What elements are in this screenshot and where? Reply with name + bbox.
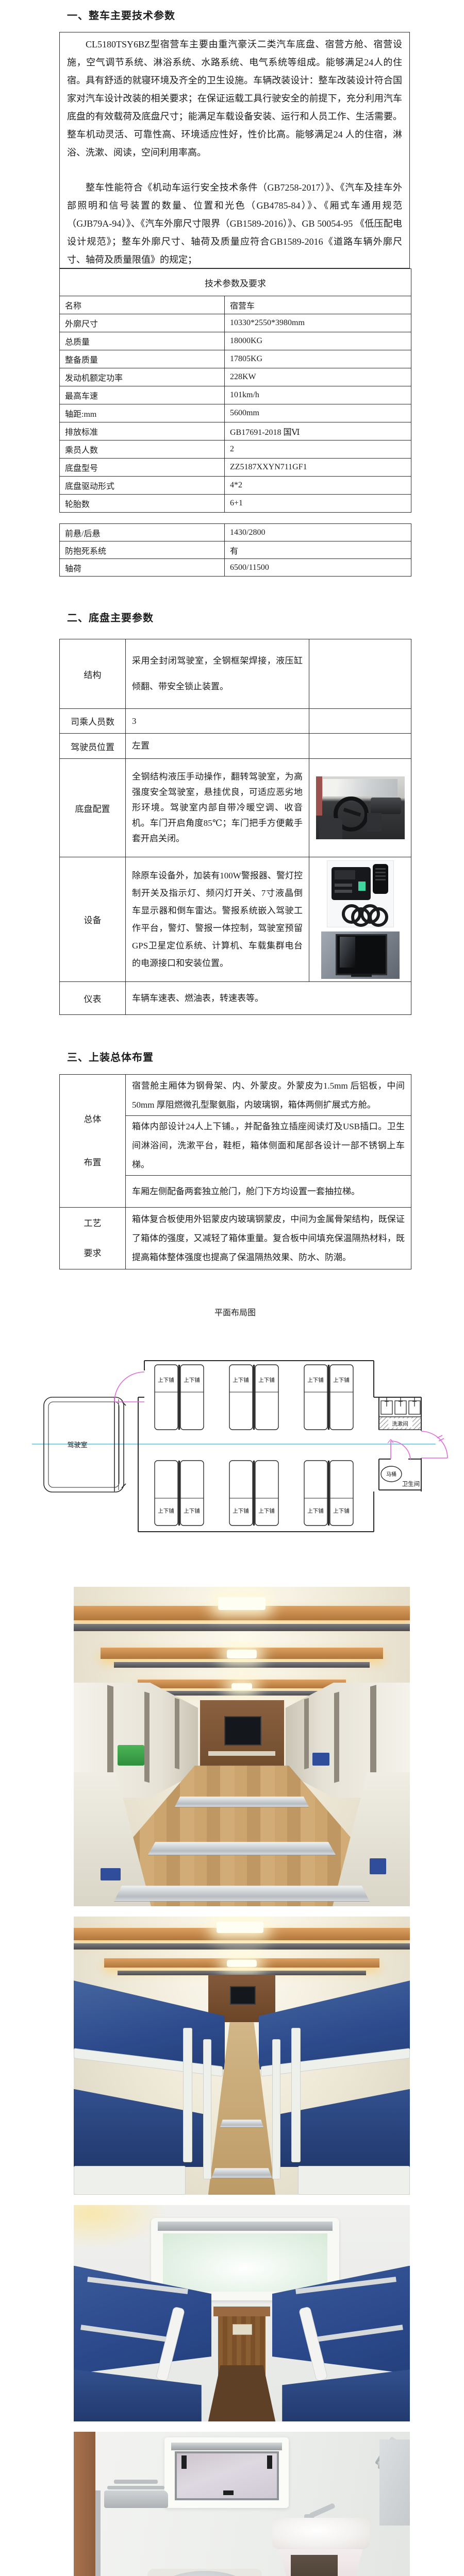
label-line: 要求 [65,1243,120,1264]
bunk-corridor-blue-mattress-photo [74,1917,410,2195]
row-label: 设备 [60,857,126,982]
bunk-gap [144,1691,150,1783]
white-bed-post [203,2039,211,2179]
row-text: 宿营舱主厢体为钢骨架、内、外蒙皮。外蒙皮为1.5mm 后铝板，中间50mm 厚阻… [126,1075,411,1116]
ceiling-light [227,1650,257,1658]
bunk-gap [334,1691,339,1783]
section1-title: 一、整车主要技术参数 [67,7,175,22]
window-top-rail [171,2443,282,2450]
table-row: 轴距:mm5600mm [60,404,411,422]
row-label: 轮胎数 [60,495,225,513]
row-text: 车辆车速表、燃油表，转速表等。 [126,982,411,1015]
wood-door-frame [74,2432,95,2576]
ceiling-rail [74,1624,410,1631]
rear-window-bunks-photo [74,2205,410,2421]
power-outlet-panel [233,2324,253,2335]
lower-bench-right [282,2369,410,2421]
cab-interior-photo [316,776,405,839]
row-value: 5600mm [225,404,411,422]
table-row: 结构 采用全封闭驾驶室，全钢框架焊接，液压缸倾翻、带安全锁止装置。 [60,639,411,709]
lower-frame-left [74,2166,186,2195]
row-label: 结构 [60,639,126,709]
table-row: 发动机额定功率228KW [60,368,411,386]
row-value: 17805KG [225,350,411,368]
window-latch [223,2490,234,2495]
equipment-image-cell [309,857,411,982]
bunk-label: 上下铺 [307,1507,324,1514]
control-display [335,870,355,879]
row-label: 防抱死系统 [60,541,225,559]
row-label: 乘员人数 [60,440,225,459]
empty-cell [309,734,411,759]
table-row: 总体 布置 宿营舱主厢体为钢骨架、内、外蒙皮。外蒙皮为1.5mm 后铝板，中间5… [60,1075,411,1116]
white-bed-post [272,2039,280,2179]
floorplan-title: 平面布局图 [59,1306,411,1318]
empty-cell [309,639,411,709]
table-row: 总质量18000KG [60,332,411,350]
row-value: 宿营车 [225,296,411,314]
windshield [323,779,397,796]
bunk-beds-bottom-row [155,1461,353,1526]
table-row: 防抱死系统有 [60,541,411,559]
intro-text-box: CL5180TSY6BZ型宿营车主要由重汽豪沃二类汽车底盘、宿营方舱、宿营设施，… [59,32,410,268]
row-label: 底盘型号 [60,459,225,477]
row-label: 底盘驱动形式 [60,477,225,495]
green-indicator [358,882,366,891]
bunk-label: 上下铺 [158,1507,174,1514]
bunk-label: 上下铺 [307,1377,324,1383]
table-row: 设备 除原车设备外，加装有100W警报器、警灯控制开关及指示灯、频闪灯开关、7寸… [60,857,411,982]
table-row: 最高车速101km/h [60,386,411,404]
row-value: 有 [225,541,411,559]
tv-screen [230,1986,256,2005]
row-value: 228KW [225,368,411,386]
bunk-gap [304,1698,309,1770]
row-value: 18000KG [225,332,411,350]
white-bed-post [291,2028,301,2162]
table-row: 工艺 要求 箱体复合板使用外铝蒙皮内玻璃钢蒙皮，中间为金属骨架结构，既保证了箱体… [60,1208,411,1269]
window-hinge [267,2455,272,2469]
row-value: 2 [225,440,411,459]
screen-reflection [340,937,355,968]
row-value: GB17691-2018 国Ⅵ [225,422,411,440]
coiled-cable [369,907,388,927]
table1-title: 技术参数及要求 [60,269,411,296]
dashboard [371,798,401,814]
row-value: 101km/h [225,386,411,404]
ceiling-light [217,1922,263,1934]
empty-cell [309,709,411,734]
row-value: 4*2 [225,477,411,495]
row-value: ZZ5187XXYN711GF1 [225,459,411,477]
ceiling-light [218,1597,265,1610]
section2-title: 二、底盘主要参数 [67,609,154,624]
row-label: 轴荷 [60,559,225,577]
bunk-corridor-white-interior-photo [74,1587,410,1906]
table-row: 名称宿营车 [60,296,411,314]
table-row: 前悬/后悬1430/2800 [60,524,411,541]
table-row: 驾驶员位置 左置 [60,734,411,759]
table-row: 排放标准GB17691-2018 国Ⅵ [60,422,411,440]
row-label: 驾驶员位置 [60,734,126,759]
blue-mat [312,1753,329,1766]
tech-parameters-table: 技术参数及要求 名称宿营车 外廓尺寸10330*2550*3980mm 总质量1… [59,268,411,513]
table-row: 司乘人员数 3 [60,709,411,734]
floor-aluminum-strip [147,1842,336,1855]
intro-paragraph-1: CL5180TSY6BZ型宿营车主要由重汽豪沃二类汽车底盘、宿营方舱、宿营设施，… [67,36,402,162]
overall-layout-label: 总体 布置 [60,1075,126,1208]
document-page: 一、整车主要技术参数 CL5180TSY6BZ型宿营车主要由重汽豪沃二类汽车底盘… [0,0,464,2576]
floor-aluminum-strip [114,1886,370,1902]
row-label: 仪表 [60,982,126,1015]
row-value: 1430/2800 [225,524,411,541]
bunk-label: 上下铺 [233,1377,249,1383]
floor-aluminum-strip [211,2168,272,2178]
chassis-image-cell [309,759,411,857]
toilet-door-arc [388,1439,410,1460]
ceiling-rail [147,1691,336,1696]
axle-parameters-table: 前悬/后悬1430/2800 防抱死系统有 轴荷6500/11500 [59,523,411,577]
row-text: 箱体内部设计24人上下铺。，并配备独立插座阅读灯及USB插口。卫生间淋浴间，洗漱… [126,1116,411,1176]
row-label: 排放标准 [60,422,225,440]
window-glass [163,2233,327,2292]
window-hinge [181,2455,187,2469]
green-storage-box [118,1745,144,1766]
table-row: 乘员人数2 [60,440,411,459]
ceiling-light [227,1960,257,1967]
intro-paragraph-2: 整车性能符合《机动车运行安全技术条件（GB7258-2017）》、《汽车及挂车外… [67,179,402,269]
bunk-label: 上下铺 [258,1377,275,1383]
row-label: 轴距:mm [60,404,225,422]
siren-control-handset-photo [327,860,394,927]
label-line: 工艺 [65,1213,120,1234]
body-layout-table: 总体 布置 宿营舱主厢体为钢骨架、内、外蒙皮。外蒙皮为1.5mm 后铝板，中间5… [59,1074,411,1269]
window-roller-bar [158,2222,333,2231]
sink-access-panel [291,2555,338,2576]
toilet-seat-label: 马桶 [386,1471,396,1478]
table-row: 仪表 车辆车速表、燃油表，转速表等。 [60,982,411,1015]
bunk-label: 上下铺 [184,1507,200,1514]
corner-shelf-rail [107,2486,164,2490]
row-text: 除原车设备外，加装有100W警报器、警灯控制开关及指示灯、频闪灯开关、7寸液晶倒… [126,857,309,982]
table-row: 整备质量17805KG [60,350,411,368]
row-value: 6500/11500 [225,559,411,577]
cab-label: 驾驶室 [67,1441,87,1449]
cabinet-top [213,2307,271,2316]
label-line: 总体 [65,1109,120,1130]
sink-cabinets [381,1397,420,1414]
row-label: 司乘人员数 [60,709,126,734]
ceiling-rail [74,1943,410,1950]
bunk-label: 上下铺 [333,1377,350,1383]
row-value: 6+1 [225,495,411,513]
row-text: 采用全封闭驾驶室，全钢框架焊接，液压缸倾翻、带安全锁止装置。 [126,639,309,709]
ceiling-light [231,1683,252,1689]
bunk-label: 上下铺 [158,1377,174,1383]
door-hinge-rail [95,2490,100,2576]
corner-shelf-rail [114,2480,158,2484]
corner-shelf [104,2490,168,2508]
washroom-label: 洗漱间 [392,1420,408,1427]
ceiling-rail [114,1662,370,1668]
table-row: 轮胎数6+1 [60,495,411,513]
lower-frame-right [298,2166,410,2195]
row-label: 外廓尺寸 [60,314,225,332]
bunk-gap [175,1698,179,1770]
toilet-room-label: 卫生间 [402,1480,420,1487]
row-label: 整备质量 [60,350,225,368]
row-label: 名称 [60,296,225,314]
cab-door-pillar [316,776,322,816]
row-text: 3 [126,709,309,734]
label-line: 布置 [65,1153,120,1173]
row-text: 车厢左侧配备两套独立舱门，舱门下方均设置一套抽拉梯。 [126,1176,411,1208]
row-text: 箱体复合板使用外铝蒙皮内玻璃钢蒙皮，中间为金属骨架结构，既保证了箱体的强度，又减… [126,1208,411,1269]
row-label: 总质量 [60,332,225,350]
bunk-beds-top-row [155,1365,353,1430]
floorplan-diagram: 驾驶室 上下铺 上下铺 [0,1340,464,1546]
table-row: 底盘配置 全钢结构液压手动操作，翻转驾驶室，为高强度安全驾驶室，悬挂优良，可适应… [60,759,411,857]
mic-grille [375,868,386,870]
control-buttons [335,884,352,887]
table-row: 底盘型号ZZ5187XXYN711GF1 [60,459,411,477]
row-label: 前悬/后悬 [60,524,225,541]
corner-sink-basin [272,2518,370,2549]
blue-strap [370,1858,387,1874]
craft-requirement-label: 工艺 要求 [60,1208,126,1269]
row-label: 最高车速 [60,386,225,404]
white-bed-post [183,2028,192,2162]
row-label: 底盘配置 [60,759,126,857]
table-row: 底盘驱动形式4*2 [60,477,411,495]
row-text: 全钢结构液压手动操作，翻转驾驶室，为高强度安全驾驶室，悬挂优良，可适应恶劣地形环… [126,759,309,857]
section3-title: 三、上装总体布置 [67,1049,154,1064]
floor-aluminum-strip [220,2120,264,2128]
bunk-label: 上下铺 [258,1507,275,1514]
monitor-base [351,974,372,977]
row-text: 左置 [126,734,309,759]
tv-screen [224,1716,261,1745]
chassis-parameters-table: 结构 采用全封闭驾驶室，全钢框架焊接，液压缸倾翻、带安全锁止装置。 司乘人员数 … [59,639,411,1015]
row-value: 10330*2550*3980mm [225,314,411,332]
bunk-label: 上下铺 [184,1377,200,1383]
mirror-panel [379,2439,410,2526]
rearview-monitor-photo [321,931,400,979]
table-row: 外廓尺寸10330*2550*3980mm [60,314,411,332]
blue-strap [101,1868,121,1881]
row-label: 发动机额定功率 [60,368,225,386]
center-console [367,813,382,832]
table-row: 轴荷6500/11500 [60,559,411,577]
toilet-washroom-photo [74,2432,410,2576]
lower-bench-left [74,2369,202,2421]
bunk-label: 上下铺 [233,1507,249,1514]
control-buttons [335,890,352,893]
bunk-label: 上下铺 [333,1507,350,1514]
driver-seat [319,818,342,839]
floor-aluminum-strip [175,1797,309,1807]
rear-shelf [208,1751,275,1756]
